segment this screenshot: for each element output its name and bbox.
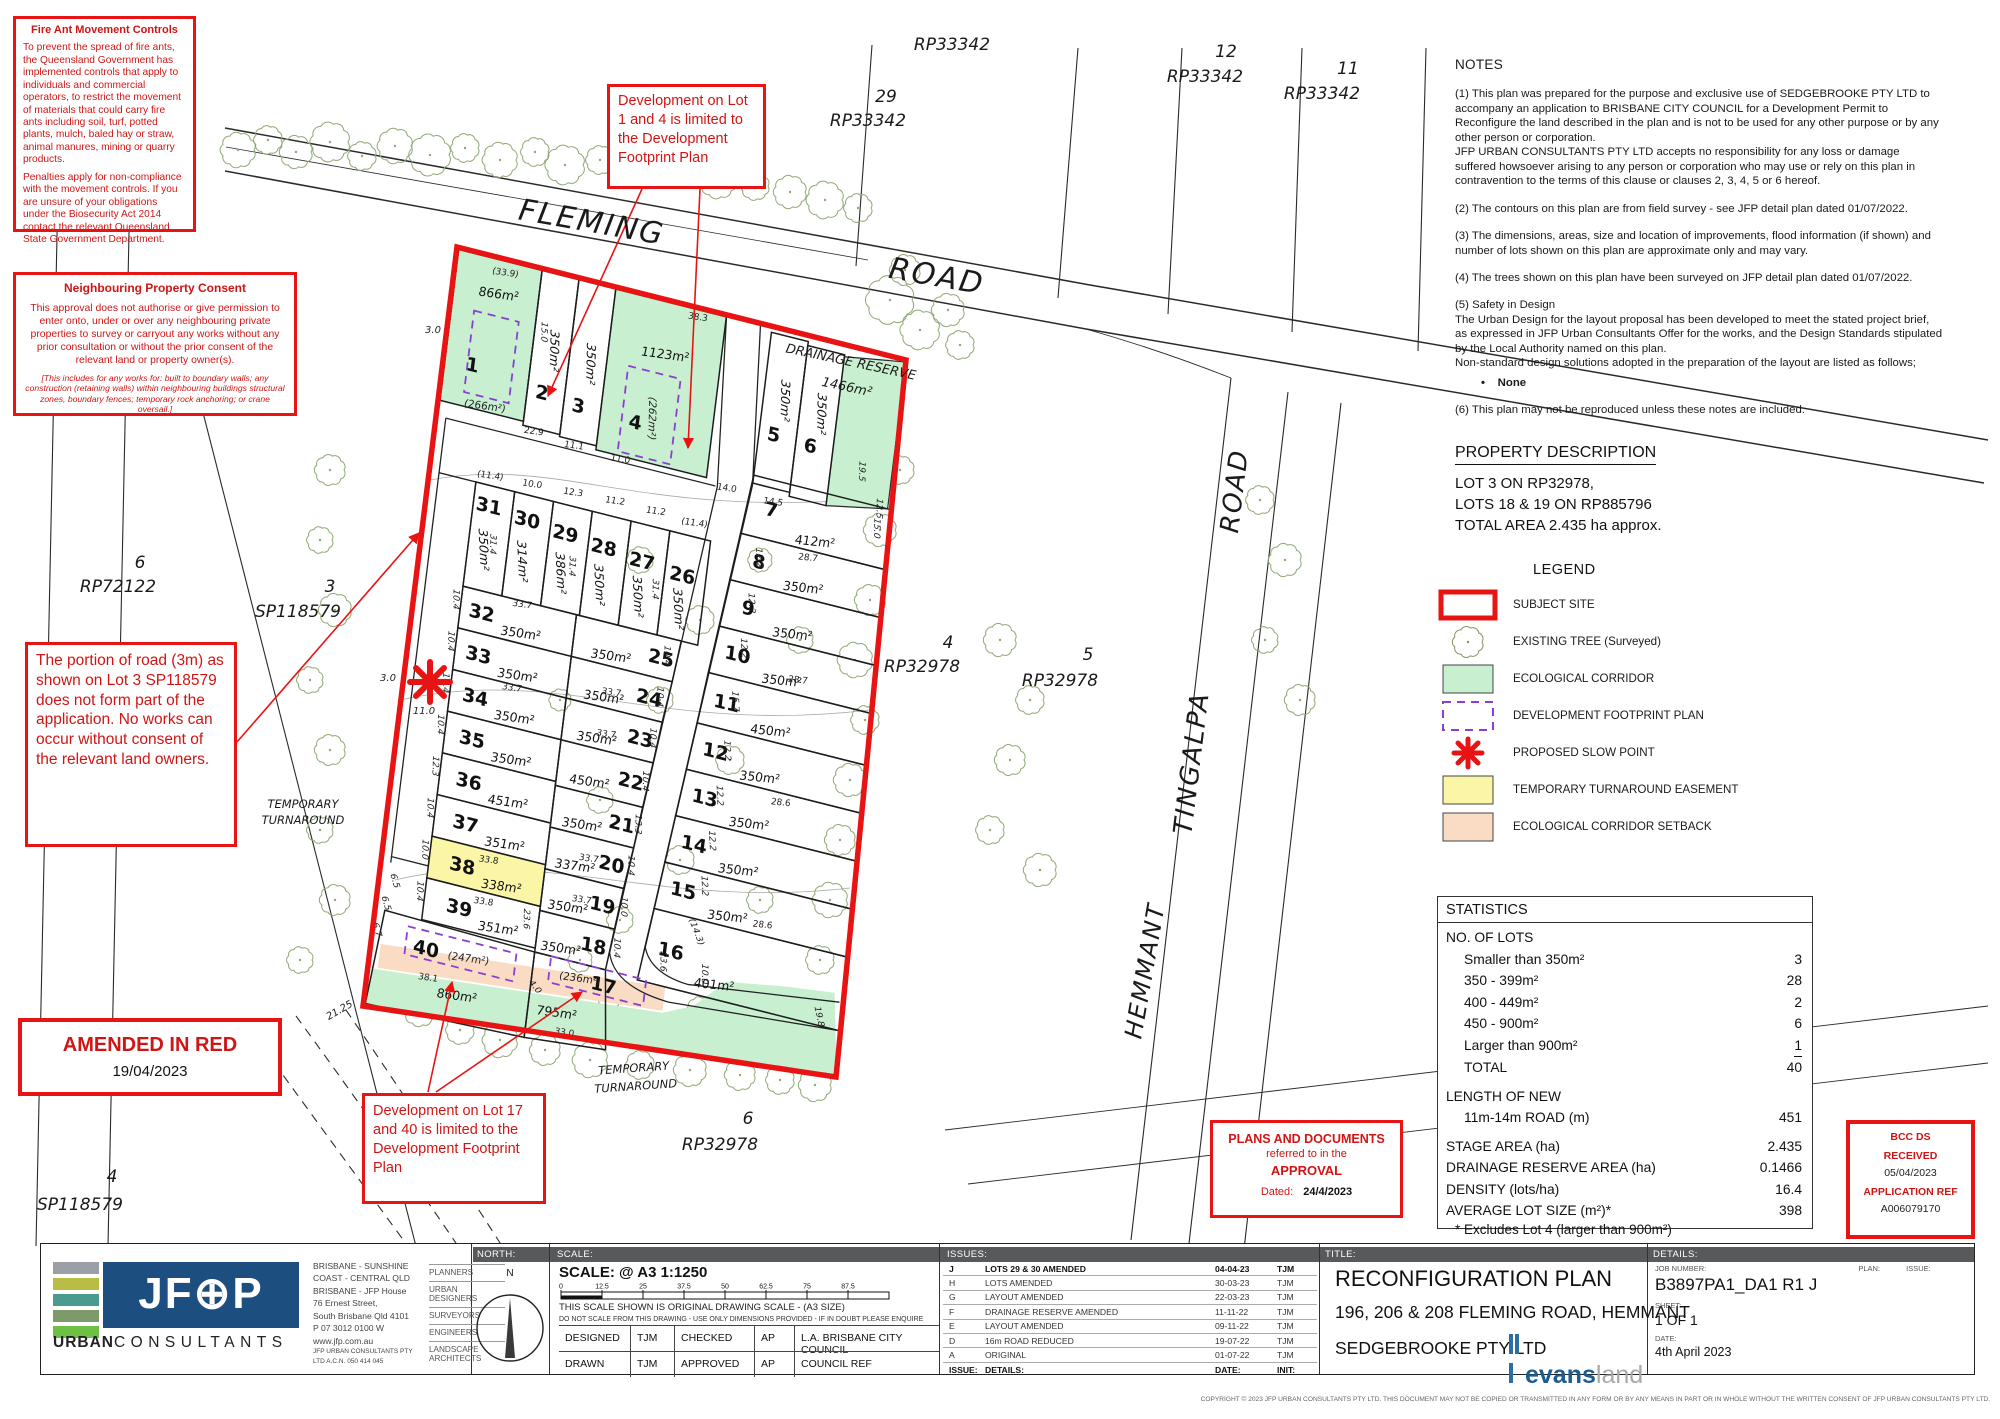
legend-label: ECOLOGICAL CORRIDOR SETBACK bbox=[1513, 820, 1712, 833]
road-portion-note: The portion of road (3m) as shown on Lot… bbox=[25, 642, 237, 847]
lot-21: 21350m² bbox=[550, 785, 642, 849]
scale-tick: 50 bbox=[721, 1284, 729, 1291]
drawing-address: 196, 206 & 208 FLEMING ROAD, HEMMANT bbox=[1335, 1302, 1690, 1323]
plans-docs-line3: APPROVAL bbox=[1213, 1163, 1400, 1178]
lot-number: 30 bbox=[513, 506, 541, 534]
fire-ant-controls-note: Fire Ant Movement Controls To prevent th… bbox=[13, 16, 196, 232]
statistics-value: 16.4 bbox=[1775, 1179, 1802, 1201]
jfp-address-line: JFP URBAN CONSULTANTS PTY LTD A.C.N. 050… bbox=[313, 1347, 425, 1366]
issues-footer-row: ISSUE:DETAILS:DATE:INIT: bbox=[943, 1363, 1317, 1378]
existing-tree-icon bbox=[806, 181, 843, 219]
lot-number: 33 bbox=[464, 641, 492, 669]
lot-area: 450m² bbox=[569, 771, 609, 792]
bcc-line1: BCC DS bbox=[1850, 1131, 1971, 1143]
dimension-label: 12.3 bbox=[563, 487, 583, 500]
legend-label: EXISTING TREE (Surveyed) bbox=[1513, 635, 1661, 648]
development-lot-1-4-note: Development on Lot 1 and 4 is limited to… bbox=[607, 84, 766, 189]
note-item: (5) Safety in Design The Urban Design fo… bbox=[1455, 298, 1943, 370]
slow-icon bbox=[1437, 736, 1499, 770]
parcel-label: RP33342 bbox=[830, 111, 906, 131]
lot-number: 19 bbox=[588, 892, 616, 920]
amended-label: AMENDED IN RED bbox=[22, 1034, 278, 1057]
parcel-label: RP33342 bbox=[914, 35, 990, 55]
existing-tree-icon bbox=[773, 175, 806, 208]
legend-header: LEGEND bbox=[1533, 562, 1857, 578]
neighbour-title: Neighbouring Property Consent bbox=[16, 281, 294, 296]
fire-ant-paragraph-1: To prevent the spread of fire ants, the … bbox=[23, 42, 186, 166]
lot-30: 30314m² bbox=[502, 492, 554, 606]
lot-number: 14 bbox=[680, 831, 708, 859]
legend-swatch bbox=[1437, 662, 1499, 696]
legend-item: DEVELOPMENT FOOTPRINT PLAN bbox=[1437, 697, 1857, 734]
issue-row: ELAYOUT AMENDED09-11-22TJM bbox=[943, 1320, 1317, 1334]
lot-area: 314m² bbox=[514, 540, 531, 583]
scale-note-1: THIS SCALE SHOWN IS ORIGINAL DRAWING SCA… bbox=[559, 1302, 845, 1313]
statistics-label: DRAINAGE RESERVE AREA (ha) bbox=[1446, 1157, 1656, 1179]
statistics-value: 2.435 bbox=[1767, 1136, 1802, 1158]
existing-tree-icon bbox=[451, 134, 479, 163]
lot-number: 37 bbox=[451, 810, 479, 838]
parcel-label: TEMPORARY bbox=[267, 797, 339, 811]
dimension-label: 10.4 bbox=[450, 589, 460, 611]
lot-number: 29 bbox=[551, 520, 579, 548]
evansland-bars-icon bbox=[1509, 1332, 1525, 1390]
lot-area: 350m² bbox=[670, 588, 687, 631]
existing-tree-icon bbox=[994, 745, 1025, 776]
jfp-address-line: P 07 3012 0100 W www.jfp.com.au bbox=[313, 1322, 425, 1347]
property-description: PROPERTY DESCRIPTION LOT 3 ON RP32978,LO… bbox=[1455, 444, 1855, 534]
bcc-date: 05/04/2023 bbox=[1850, 1167, 1971, 1179]
legend-label: ECOLOGICAL CORRIDOR bbox=[1513, 672, 1654, 685]
job-number: B3897PA1_DA1 R1 J bbox=[1655, 1275, 1955, 1295]
lot-number: 2 bbox=[534, 381, 550, 406]
jfp-logo: JF⊕P bbox=[103, 1262, 299, 1328]
legend-swatch bbox=[1437, 588, 1499, 622]
existing-tree-icon bbox=[983, 623, 1016, 656]
issue-detail: DRAINAGE RESERVE AMENDED bbox=[985, 1307, 1215, 1317]
issue-row: FDRAINAGE RESERVE AMENDED11-11-22TJM bbox=[943, 1305, 1317, 1319]
setback-icon bbox=[1437, 810, 1499, 844]
statistics-label: TOTAL bbox=[1446, 1057, 1507, 1079]
statistics-label: 350 - 399m² bbox=[1446, 970, 1538, 992]
statistics-label: STAGE AREA (ha) bbox=[1446, 1136, 1560, 1158]
statistics-label: Larger than 900m² bbox=[1446, 1035, 1578, 1058]
existing-tree-icon bbox=[314, 735, 345, 766]
issue-row: JLOTS 29 & 30 AMENDED04-04-23TJM bbox=[943, 1262, 1317, 1276]
note-item: (2) The contours on this plan are from f… bbox=[1455, 202, 1943, 216]
plans-docs-line2: referred to in the bbox=[1213, 1148, 1400, 1160]
designed-row: DESIGNED TJM CHECKED AP L.A. BRISBANE CI… bbox=[559, 1325, 939, 1351]
dimension-label: 31.4 bbox=[487, 533, 497, 555]
statistics-row: 400 - 449m²2 bbox=[1446, 992, 1802, 1014]
bcc-application-ref-label: APPLICATION REF bbox=[1850, 1186, 1971, 1198]
fire-ant-title: Fire Ant Movement Controls bbox=[16, 24, 193, 37]
issue-row: HLOTS AMENDED30-03-23TJM bbox=[943, 1276, 1317, 1290]
dimension-label: 12.5 bbox=[874, 498, 884, 520]
lot-area: 350m² bbox=[778, 379, 794, 423]
plans-and-documents-stamp: PLANS AND DOCUMENTS referred to in the A… bbox=[1210, 1120, 1403, 1218]
existing-tree-icon bbox=[307, 527, 333, 554]
dimension-label: 14.0 bbox=[717, 482, 737, 495]
dimension-label: 10.4 bbox=[435, 714, 445, 736]
dimension-label: 10.4 bbox=[424, 797, 434, 819]
lot-number: 32 bbox=[467, 599, 495, 627]
parcel-label: RP33342 bbox=[1167, 67, 1243, 87]
dimension-label: 11.0 bbox=[413, 706, 435, 717]
dimension-label: 33.7 bbox=[502, 682, 522, 695]
parcel-label: 3 bbox=[325, 577, 336, 597]
lot-number: 20 bbox=[597, 851, 625, 879]
title-block-header-bar bbox=[473, 1247, 1974, 1262]
scale-tick: 12.5 bbox=[595, 1284, 609, 1291]
legend-item: EXISTING TREE (Surveyed) bbox=[1437, 623, 1857, 660]
existing-tree-icon bbox=[1268, 543, 1301, 576]
neighbour-fine-print: [This includes for any works for: built … bbox=[24, 373, 286, 414]
subject-icon bbox=[1437, 588, 1499, 622]
street-label: FLEMING bbox=[516, 193, 667, 253]
statistics-label: 11m-14m ROAD (m) bbox=[1446, 1107, 1589, 1129]
dimension-label: 12.2 bbox=[698, 875, 709, 896]
existing-tree-icon bbox=[220, 132, 255, 168]
issue-row: D16m ROAD REDUCED19-07-22TJM bbox=[943, 1334, 1317, 1348]
legend-item: PROPOSED SLOW POINT bbox=[1437, 734, 1857, 771]
parcel-label: 5 bbox=[1083, 645, 1094, 665]
existing-tree-icon bbox=[521, 138, 549, 167]
issue-init: TJM bbox=[1277, 1350, 1311, 1360]
dimension-label: 6.5 bbox=[379, 895, 393, 912]
issue-date: 19-07-22 bbox=[1215, 1336, 1277, 1346]
lot-number: 28 bbox=[590, 534, 618, 562]
details-section-label: DETAILS: bbox=[1653, 1249, 1698, 1260]
street-label: TINGALPA bbox=[1168, 690, 1215, 836]
legend-swatch bbox=[1437, 773, 1499, 807]
statistics-label: DENSITY (lots/ha) bbox=[1446, 1179, 1559, 1201]
issue-detail: LAYOUT AMENDED bbox=[985, 1292, 1215, 1302]
jfp-address-line: 76 Ernest Street, bbox=[313, 1297, 425, 1309]
issue-detail: LOTS AMENDED bbox=[985, 1278, 1215, 1288]
existing-tree-icon bbox=[844, 194, 872, 223]
lot-number: 27 bbox=[628, 547, 656, 575]
dimension-label: 15.0 bbox=[871, 517, 881, 539]
existing-tree-icon bbox=[1252, 627, 1278, 654]
dimension-label: 10.0 bbox=[618, 896, 628, 918]
statistics-label: NO. OF LOTS bbox=[1446, 927, 1533, 949]
statistics-value: 6 bbox=[1794, 1013, 1802, 1035]
plans-docs-dated-value: 24/4/2023 bbox=[1303, 1186, 1352, 1198]
dimension-label: 10.4 bbox=[647, 727, 657, 749]
existing-tree-icon bbox=[297, 667, 323, 694]
statistics-value: 398 bbox=[1779, 1200, 1802, 1222]
existing-tree-icon bbox=[310, 122, 349, 162]
dimension-label: 33.8 bbox=[474, 896, 494, 909]
lot-number: 21 bbox=[607, 810, 635, 838]
dimension-label: (14.3) bbox=[686, 918, 705, 947]
dimension-label: 11.2 bbox=[646, 505, 666, 518]
dimension-label: 12.2 bbox=[721, 740, 732, 761]
issue-init: TJM bbox=[1277, 1264, 1311, 1274]
dimension-label: 10.4 bbox=[611, 937, 621, 959]
dimension-label: 23.6 bbox=[521, 908, 531, 930]
dimension-label: (11.4) bbox=[681, 517, 708, 531]
north-arrow-icon: N bbox=[471, 1262, 549, 1374]
neighbour-paragraph: This approval does not authorise or give… bbox=[24, 302, 286, 367]
title-block: NORTH: SCALE: ISSUES: TITLE: DETAILS: JF… bbox=[40, 1243, 1975, 1375]
issue-letter: F bbox=[943, 1307, 985, 1317]
eco-icon bbox=[1437, 662, 1499, 696]
lot-29: 29386m² bbox=[541, 501, 593, 615]
dimension-label: 3.0 bbox=[380, 673, 396, 684]
statistics-label: 450 - 900m² bbox=[1446, 1013, 1538, 1035]
parcel-label: RP33342 bbox=[1284, 84, 1360, 104]
parcel-label: 11 bbox=[1337, 59, 1359, 79]
property-description-header: PROPERTY DESCRIPTION bbox=[1455, 444, 1656, 465]
parcel-label: RP32978 bbox=[682, 1135, 758, 1155]
statistics-row: STAGE AREA (ha)2.435 bbox=[1446, 1136, 1802, 1158]
legend-swatch bbox=[1437, 625, 1499, 659]
statistics-header: STATISTICS bbox=[1438, 897, 1812, 923]
dimension-label: 31.4 bbox=[566, 555, 576, 577]
amended-in-red-stamp: AMENDED IN RED 19/04/2023 bbox=[18, 1018, 282, 1096]
notes-panel: NOTES (1) This plan was prepared for the… bbox=[1455, 56, 1943, 431]
issues-footer-init: INIT: bbox=[1277, 1365, 1311, 1375]
scale-tick: 37.5 bbox=[677, 1284, 691, 1291]
notes-header: NOTES bbox=[1455, 56, 1943, 73]
dimension-label: 15.0 bbox=[538, 321, 548, 343]
issue-date: 11-11-22 bbox=[1215, 1307, 1277, 1317]
statistics-value: 1 bbox=[1794, 1035, 1802, 1058]
statistics-row: 450 - 900m²6 bbox=[1446, 1013, 1802, 1035]
parcel-label: 29 bbox=[875, 87, 897, 107]
scale-text: SCALE: @ A3 1:1250 bbox=[559, 1264, 707, 1281]
statistics-label: AVERAGE LOT SIZE (m²)* bbox=[1446, 1200, 1611, 1222]
statistics-row: 11m-14m ROAD (m)451 bbox=[1446, 1107, 1802, 1129]
parcel-label: 4 bbox=[943, 633, 954, 653]
issue-row: GLAYOUT AMENDED22-03-23TJM bbox=[943, 1291, 1317, 1305]
lot-number: 5 bbox=[766, 423, 782, 448]
dimension-label: 10.4 bbox=[625, 855, 635, 877]
existing-tree-icon bbox=[976, 816, 1004, 845]
legend-label: PROPOSED SLOW POINT bbox=[1513, 746, 1655, 759]
lot-number: 4 bbox=[627, 410, 643, 435]
existing-tree-icon bbox=[946, 331, 974, 360]
amended-date: 19/04/2023 bbox=[22, 1063, 278, 1080]
statistics-value: 451 bbox=[1779, 1107, 1802, 1129]
dimension-label: 28.7 bbox=[788, 675, 808, 687]
lot-area: 350m² bbox=[630, 575, 647, 618]
lot-27: 27350m² bbox=[618, 521, 670, 635]
dimension-label: 11.0 bbox=[611, 454, 631, 467]
scale-tick: 87.5 bbox=[841, 1284, 855, 1291]
lot-area: 350m² bbox=[591, 564, 608, 607]
statistics-label: Smaller than 350m² bbox=[1446, 949, 1584, 971]
statistics-value: 2 bbox=[1794, 992, 1802, 1014]
legend-item: SUBJECT SITE bbox=[1437, 586, 1857, 623]
details-panel: JOB NUMBER: PLAN: ISSUE: B3897PA1_DA1 R1… bbox=[1655, 1264, 1955, 1359]
lot-number: 34 bbox=[461, 684, 489, 712]
existing-tree-icon bbox=[348, 142, 376, 171]
issue-letter: E bbox=[943, 1321, 985, 1331]
lot-number: 6 bbox=[803, 434, 819, 459]
existing-tree-icon bbox=[254, 126, 282, 155]
property-description-line: LOT 3 ON RP32978, bbox=[1455, 475, 1855, 492]
statistics-row: Larger than 900m²1 bbox=[1446, 1035, 1802, 1058]
street-label: HEMMANT bbox=[1119, 900, 1171, 1041]
issues-footer-date: DATE: bbox=[1215, 1365, 1277, 1375]
dimension-label: 10.4 bbox=[640, 770, 650, 792]
drawn-row: DRAWN TJM APPROVED AP COUNCIL REF bbox=[559, 1351, 939, 1377]
existing-tree-icon bbox=[1284, 685, 1315, 716]
legend: LEGEND SUBJECT SITEEXISTING TREE (Survey… bbox=[1437, 562, 1857, 845]
legend-swatch bbox=[1437, 810, 1499, 844]
bcc-received-stamp: BCC DS RECEIVED 05/04/2023 APPLICATION R… bbox=[1846, 1120, 1975, 1239]
lot-number: 31 bbox=[475, 493, 503, 521]
tree-icon bbox=[1437, 625, 1499, 659]
parcel-label: TEMPORARY bbox=[598, 1058, 671, 1077]
lot-number: 35 bbox=[458, 726, 486, 754]
jfp-address-line: BRISBANE - SUNSHINE COAST - CENTRAL QLD bbox=[313, 1260, 425, 1285]
scale-tick: 25 bbox=[639, 1284, 647, 1291]
legend-item: TEMPORARY TURNAROUND EASEMENT bbox=[1437, 771, 1857, 808]
fire-ant-paragraph-2: Penalties apply for non-compliance with … bbox=[23, 172, 186, 247]
legend-item: ECOLOGICAL CORRIDOR bbox=[1437, 660, 1857, 697]
footprint-area: (262m²) bbox=[645, 396, 658, 441]
lot-number: 26 bbox=[668, 562, 696, 590]
dimension-label: 12.2 bbox=[738, 638, 749, 659]
note-item: (4) The trees shown on this plan have be… bbox=[1455, 271, 1943, 285]
parcel-label: SP118579 bbox=[37, 1195, 123, 1215]
legend-label: SUBJECT SITE bbox=[1513, 598, 1595, 611]
copyright-line: COPYRIGHT © 2023 JFP URBAN CONSULTANTS P… bbox=[0, 1396, 1990, 1403]
dimension-label: 3.0 bbox=[425, 325, 441, 336]
parcel-label: TURNAROUND bbox=[594, 1076, 678, 1096]
footprint-icon bbox=[1437, 699, 1499, 733]
sheet-number: 1 OF 1 bbox=[1655, 1312, 1955, 1328]
issue-detail: LAYOUT AMENDED bbox=[985, 1321, 1215, 1331]
legend-label: DEVELOPMENT FOOTPRINT PLAN bbox=[1513, 709, 1704, 722]
jfp-address-line: BRISBANE - JFP House bbox=[313, 1285, 425, 1297]
existing-tree-icon bbox=[314, 455, 345, 486]
statistics-row: NO. OF LOTS bbox=[1446, 927, 1802, 949]
statistics-row: AVERAGE LOT SIZE (m²)*398 bbox=[1446, 1200, 1802, 1222]
dimension-label: 28.7 bbox=[798, 552, 818, 564]
lot-area: 350m² bbox=[583, 342, 599, 386]
dimension-label: 33.7 bbox=[513, 599, 533, 612]
scale-tick: 0 bbox=[559, 1284, 563, 1291]
dimension-label: (11.4) bbox=[477, 469, 504, 483]
statistics-value: 3 bbox=[1794, 949, 1802, 971]
existing-tree-icon bbox=[747, 887, 773, 914]
north-section-label: NORTH: bbox=[477, 1249, 516, 1260]
jfp-stripes-logo bbox=[53, 1262, 99, 1340]
issue-letter: H bbox=[943, 1278, 985, 1288]
note-item: • None bbox=[1481, 376, 1943, 390]
dimension-label: 31.4 bbox=[650, 578, 660, 600]
drawing-title: RECONFIGURATION PLAN bbox=[1335, 1266, 1612, 1292]
lot-number: 3 bbox=[570, 394, 586, 419]
dimension-label: 28.6 bbox=[753, 919, 773, 931]
parcel-label: TURNAROUND bbox=[262, 813, 345, 827]
legend-label: TEMPORARY TURNAROUND EASEMENT bbox=[1513, 783, 1738, 796]
lot-number: 18 bbox=[579, 932, 607, 960]
scale-tick: 62.5 bbox=[759, 1284, 773, 1291]
scale-section-label: SCALE: bbox=[557, 1249, 593, 1260]
dimension-label: 12.3 bbox=[430, 755, 440, 777]
development-lot-1-4-text: Development on Lot 1 and 4 is limited to… bbox=[618, 93, 748, 166]
dimension-label: 23.6 bbox=[657, 951, 667, 973]
neighbouring-property-consent-note: Neighbouring Property Consent This appro… bbox=[13, 272, 297, 416]
road-portion-text: The portion of road (3m) as shown on Lot… bbox=[36, 652, 224, 768]
statistics-row: 350 - 399m²28 bbox=[1446, 970, 1802, 992]
issues-footer-details: DETAILS: bbox=[985, 1365, 1215, 1375]
parcel-label: 6 bbox=[135, 553, 146, 573]
issue-date: 04-04-23 bbox=[1215, 1264, 1277, 1274]
lot-number: 39 bbox=[445, 894, 473, 922]
note-item: (6) This plan may not be reproduced unle… bbox=[1455, 403, 1943, 417]
development-lot-17-40-note: Development on Lot 17 and 40 is limited … bbox=[362, 1093, 546, 1204]
development-lot-17-40-text: Development on Lot 17 and 40 is limited … bbox=[373, 1103, 523, 1176]
dimension-label: 12.2 bbox=[714, 785, 725, 806]
scale-note-2: DO NOT SCALE FROM THIS DRAWING - USE ONL… bbox=[559, 1316, 923, 1323]
issue-init: TJM bbox=[1277, 1307, 1311, 1317]
lot-area: 350m² bbox=[814, 392, 830, 436]
legend-swatch bbox=[1437, 699, 1499, 733]
statistics-row: Smaller than 350m²3 bbox=[1446, 949, 1802, 971]
existing-tree-icon bbox=[824, 825, 855, 856]
dimension-label: 12.2 bbox=[746, 592, 757, 613]
dimension-label: 12.2 bbox=[753, 547, 764, 568]
statistics-value: 40 bbox=[1787, 1057, 1802, 1079]
dimension-label: 13.3 bbox=[632, 813, 642, 835]
legend-swatch bbox=[1437, 736, 1499, 770]
plan-sheet: 1866m²2350m²3350m²41123m²5350m²6350m²313… bbox=[0, 0, 2000, 1414]
dimension-label: 11.1 bbox=[564, 440, 584, 453]
issue-detail: 16m ROAD REDUCED bbox=[985, 1336, 1215, 1346]
statistics-row: DRAINAGE RESERVE AREA (ha)0.1466 bbox=[1446, 1157, 1802, 1179]
issue-letter: D bbox=[943, 1336, 985, 1346]
statistics-table: STATISTICS NO. OF LOTSSmaller than 350m²… bbox=[1437, 896, 1813, 1229]
issue-letter: A bbox=[943, 1350, 985, 1360]
existing-tree-icon bbox=[545, 145, 584, 185]
dimension-label: 10.4 bbox=[661, 645, 671, 667]
dimension-label: 6.5 bbox=[387, 873, 401, 890]
property-description-line: TOTAL AREA 2.435 ha approx. bbox=[1455, 517, 1855, 534]
parcel-label: 12 bbox=[1215, 42, 1237, 62]
existing-tree-icon bbox=[1023, 853, 1056, 886]
easement-icon bbox=[1437, 773, 1499, 807]
dimension-label: 10.4 bbox=[414, 880, 424, 902]
issue-date: 01-07-22 bbox=[1215, 1350, 1277, 1360]
issue-init: TJM bbox=[1277, 1278, 1311, 1288]
issue-date: 30-03-23 bbox=[1215, 1278, 1277, 1288]
plans-docs-dated-label: Dated: bbox=[1261, 1186, 1293, 1198]
existing-tree-icon bbox=[482, 142, 517, 178]
title-section-label: TITLE: bbox=[1325, 1249, 1356, 1260]
issue-letter: J bbox=[943, 1264, 985, 1274]
parcel-label: 4 bbox=[107, 1167, 118, 1187]
jfp-urban-consultants-wordmark: URBANCONSULTANTS bbox=[53, 1334, 288, 1352]
evansland-logo: evansland bbox=[1509, 1332, 1643, 1390]
issue-detail: LOTS 29 & 30 AMENDED bbox=[985, 1264, 1215, 1274]
existing-tree-icon bbox=[409, 134, 451, 176]
dimension-label: 10.4 bbox=[654, 686, 664, 708]
statistics-row: DENSITY (lots/ha)16.4 bbox=[1446, 1179, 1802, 1201]
parcel-label: RP32978 bbox=[1022, 671, 1098, 691]
scale-bar: 012.52537.55062.57587.5 bbox=[559, 1282, 919, 1304]
lot-28: 28350m² bbox=[579, 511, 631, 625]
legend-item: ECOLOGICAL CORRIDOR SETBACK bbox=[1437, 808, 1857, 845]
statistics-footnote: * Excludes Lot 4 (larger than 900m²) bbox=[1455, 1222, 1672, 1237]
parcel-label: RP72122 bbox=[80, 577, 156, 597]
